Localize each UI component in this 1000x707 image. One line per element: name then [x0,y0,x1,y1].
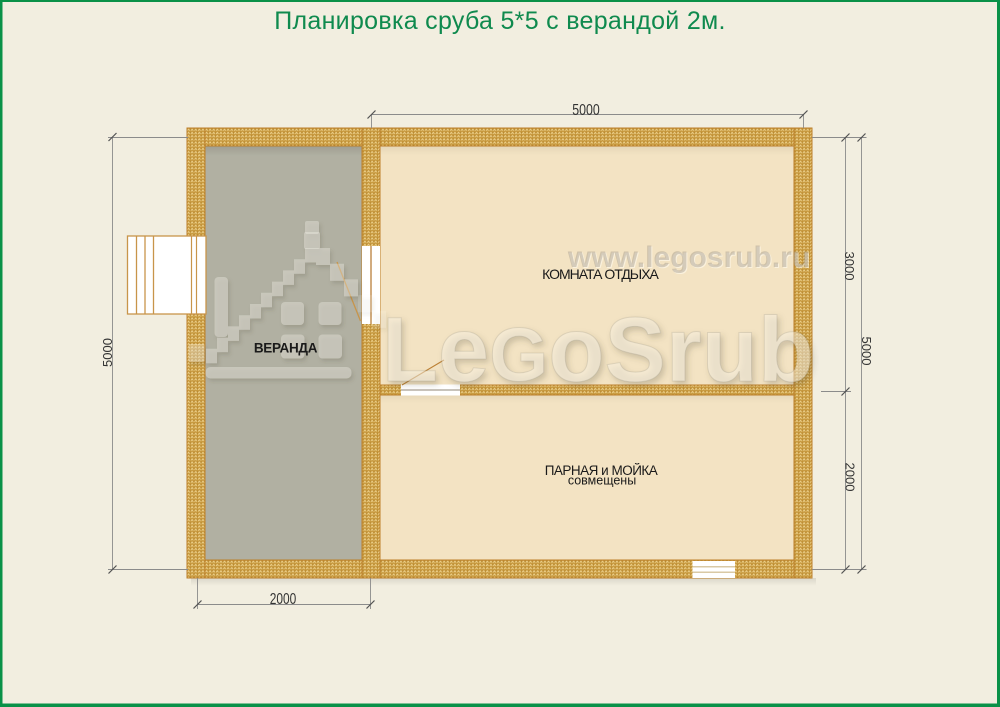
svg-text:2000: 2000 [270,591,297,608]
svg-text:5000: 5000 [859,337,874,366]
svg-text:ВЕРАНДА: ВЕРАНДА [254,341,318,356]
svg-text:3000: 3000 [842,252,857,281]
svg-text:совмещены: совмещены [568,474,636,488]
svg-text:5000: 5000 [100,338,115,367]
svg-text:5000: 5000 [572,102,600,119]
svg-text:LeGoSrub: LeGoSrub [382,299,814,401]
svg-text:2000: 2000 [843,463,858,492]
svg-text:Планировка сруба 5*5 с верандо: Планировка сруба 5*5 с верандой 2м. [274,7,726,35]
svg-text:КОМНАТА ОТДЫХА: КОМНАТА ОТДЫХА [542,266,659,282]
